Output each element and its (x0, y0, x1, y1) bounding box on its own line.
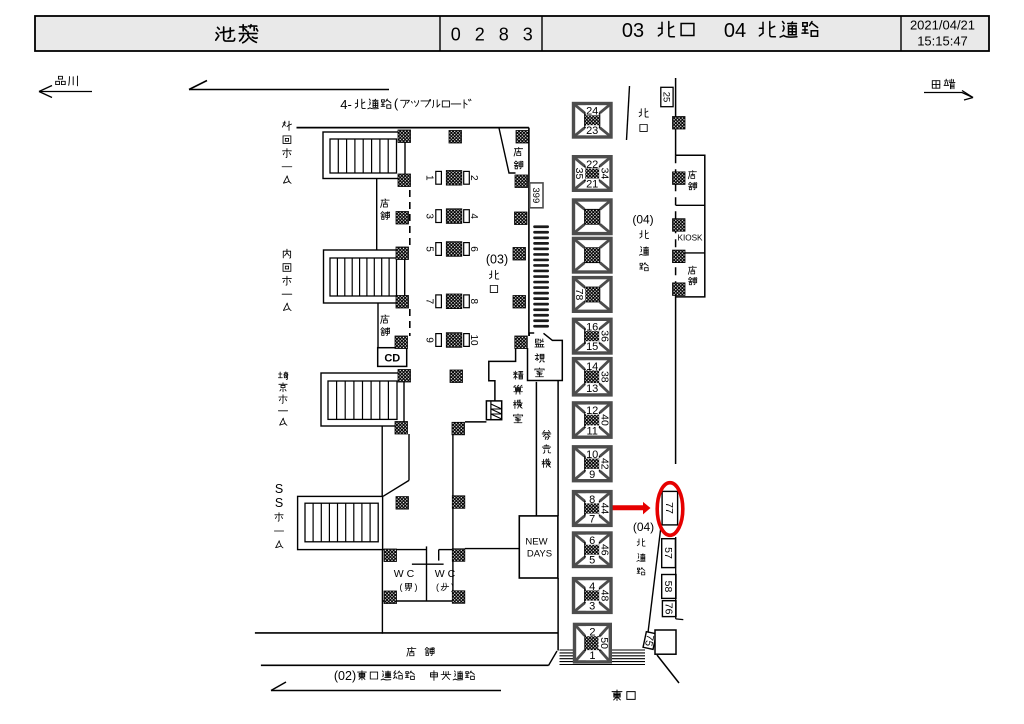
svg-text:4: 4 (468, 213, 479, 219)
svg-text:57: 57 (662, 547, 674, 559)
svg-text:(04): (04) (633, 520, 654, 534)
svg-text:4: 4 (589, 581, 595, 593)
svg-text:21: 21 (586, 179, 598, 191)
svg-text:50: 50 (598, 637, 610, 649)
svg-text:S: S (275, 496, 283, 510)
svg-text:NEW: NEW (525, 537, 547, 548)
svg-text:(04): (04) (632, 213, 653, 227)
svg-text:(: ( (400, 582, 403, 592)
svg-text:22: 22 (586, 159, 598, 171)
svg-text:(: ( (394, 96, 399, 111)
svg-text:58: 58 (662, 581, 674, 593)
svg-text:35: 35 (573, 168, 585, 180)
svg-text:3: 3 (589, 601, 595, 613)
svg-text:23: 23 (586, 125, 598, 137)
svg-text:42: 42 (599, 458, 611, 470)
svg-text:6: 6 (468, 246, 479, 252)
svg-text:36: 36 (599, 330, 611, 342)
svg-text:7: 7 (589, 514, 595, 526)
svg-text:14: 14 (586, 361, 598, 373)
svg-text:46: 46 (599, 544, 611, 556)
svg-text:5: 5 (589, 555, 595, 567)
svg-text:399: 399 (530, 187, 541, 203)
svg-text:38: 38 (599, 371, 611, 383)
svg-text:25: 25 (661, 92, 672, 103)
svg-text:34: 34 (599, 168, 611, 180)
svg-text:8: 8 (589, 494, 595, 506)
svg-text:04: 04 (724, 20, 746, 42)
svg-text:2: 2 (589, 627, 595, 639)
svg-text:1: 1 (424, 175, 435, 181)
svg-text:4-: 4- (340, 97, 352, 112)
svg-text:15:15:47: 15:15:47 (917, 34, 968, 49)
svg-text:03: 03 (622, 20, 644, 42)
svg-text:W C: W C (394, 568, 415, 580)
svg-text:10: 10 (586, 449, 598, 461)
svg-text:(: ( (436, 582, 439, 592)
svg-text:16: 16 (586, 322, 598, 334)
svg-text:48: 48 (599, 590, 611, 602)
svg-text:5: 5 (424, 246, 435, 252)
svg-text:3: 3 (424, 213, 435, 219)
svg-text:1: 1 (589, 650, 595, 662)
svg-text:): ) (415, 582, 418, 592)
svg-text:8: 8 (468, 299, 479, 305)
svg-text:2021/04/21: 2021/04/21 (910, 18, 975, 33)
svg-text:7: 7 (424, 299, 435, 305)
svg-text:44: 44 (599, 503, 611, 515)
svg-text:KIOSK: KIOSK (677, 234, 703, 243)
svg-text:S: S (275, 482, 283, 496)
svg-text:DAYS: DAYS (527, 549, 552, 560)
svg-text:11: 11 (586, 425, 597, 437)
svg-text:2: 2 (468, 175, 479, 181)
svg-text:13: 13 (586, 383, 598, 395)
svg-text:77: 77 (663, 502, 675, 514)
svg-text:78: 78 (573, 289, 585, 301)
svg-text:76: 76 (663, 603, 675, 615)
svg-text:(02): (02) (334, 669, 356, 683)
svg-text:15: 15 (586, 341, 598, 353)
svg-text:10: 10 (468, 334, 479, 346)
svg-text:9: 9 (424, 337, 435, 343)
svg-text:12: 12 (586, 405, 598, 417)
svg-text:24: 24 (586, 106, 598, 118)
svg-text:40: 40 (599, 414, 611, 426)
svg-text:6: 6 (589, 535, 595, 547)
svg-text:0 2 8 3: 0 2 8 3 (451, 25, 538, 45)
svg-text:9: 9 (589, 469, 595, 481)
svg-text:(03): (03) (486, 253, 508, 267)
svg-text:CD: CD (384, 353, 400, 365)
